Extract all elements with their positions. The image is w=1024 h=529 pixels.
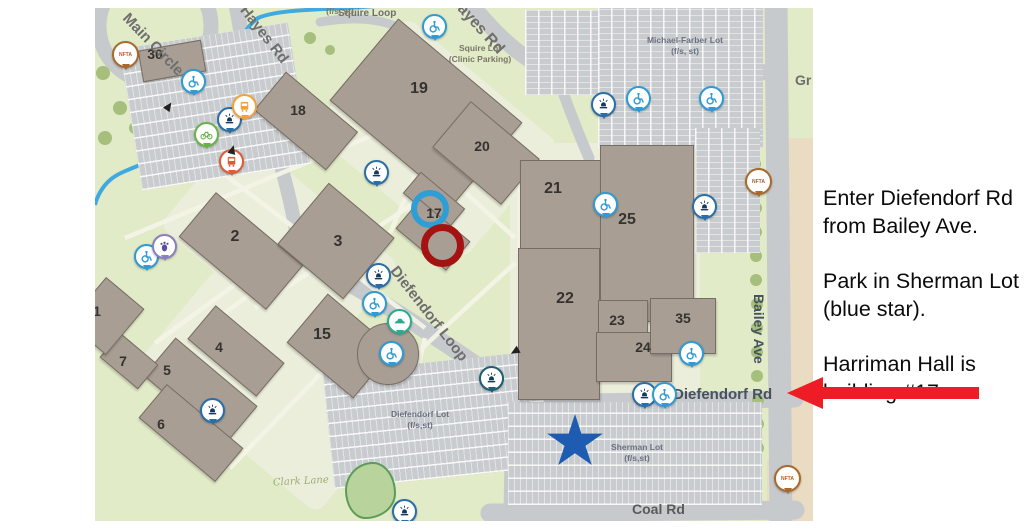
lot-squire — [525, 10, 598, 95]
bike-rack-icon — [194, 122, 219, 147]
red-arrow-annotation — [787, 377, 985, 409]
accessibility-icon — [181, 69, 206, 94]
car-share-icon — [387, 309, 412, 334]
red-arrow-head — [787, 377, 823, 409]
lot-michael-farber — [598, 8, 763, 148]
nfta-stop-icon: NFTA — [112, 41, 139, 68]
emergency-phone-icon — [591, 92, 616, 117]
note-paragraph-2: Park in Sherman Lot (blue star). — [823, 267, 1019, 324]
building-25 — [600, 145, 694, 322]
campus-map-page: 30 18 19 20 17 21 22 23 24 25 35 2 3 15 … — [0, 0, 1024, 529]
lot-label-sherman: Sherman Lot (f/s,st) — [582, 442, 692, 463]
accessibility-icon — [362, 291, 387, 316]
accessibility-icon — [679, 341, 704, 366]
purple-poi-icon — [152, 234, 177, 259]
emergency-phone-icon — [364, 160, 389, 185]
lot-label-squire: Squire Lot (Clinic Parking) — [425, 43, 535, 64]
emergency-phone-icon — [366, 263, 391, 288]
emergency-phone-icon — [392, 499, 417, 521]
blue-circle-annotation — [411, 190, 449, 228]
red-arrow-shaft — [819, 387, 979, 399]
nfta-stop-icon: NFTA — [774, 465, 801, 492]
accessibility-icon — [626, 86, 651, 111]
emergency-phone-icon — [479, 366, 504, 391]
road-label-coal-rd: Coal Rd — [632, 501, 685, 517]
accessibility-icon — [379, 341, 404, 366]
lot-label-diefendorf: Diefendorf Lot (f/s,st) — [365, 409, 475, 430]
road-label-diefendorf-rd: Diefendorf Rd — [673, 386, 772, 403]
campus-map: 30 18 19 20 17 21 22 23 24 25 35 2 3 15 … — [95, 8, 813, 521]
accessibility-icon — [699, 86, 724, 111]
emergency-phone-icon — [200, 398, 225, 423]
road-label-bailey-ave: Bailey Ave — [751, 294, 767, 364]
bus-stop-icon — [232, 94, 257, 119]
emergency-phone-icon — [692, 194, 717, 219]
red-circle-annotation — [421, 224, 464, 267]
accessibility-icon — [593, 192, 618, 217]
road-label-gr-partial: Gr — [795, 72, 811, 88]
accessibility-icon — [422, 14, 447, 39]
accessibility-icon — [652, 382, 677, 407]
building-22 — [518, 248, 600, 400]
lot-label-michael-farber: Michael-Farber Lot (f/s, st) — [630, 35, 740, 56]
note-paragraph-1: Enter Diefendorf Rd from Bailey Ave. — [823, 184, 1019, 241]
lot-label-top-partial: (f/s, st) — [285, 8, 395, 17]
nfta-stop-icon: NFTA — [745, 168, 772, 195]
